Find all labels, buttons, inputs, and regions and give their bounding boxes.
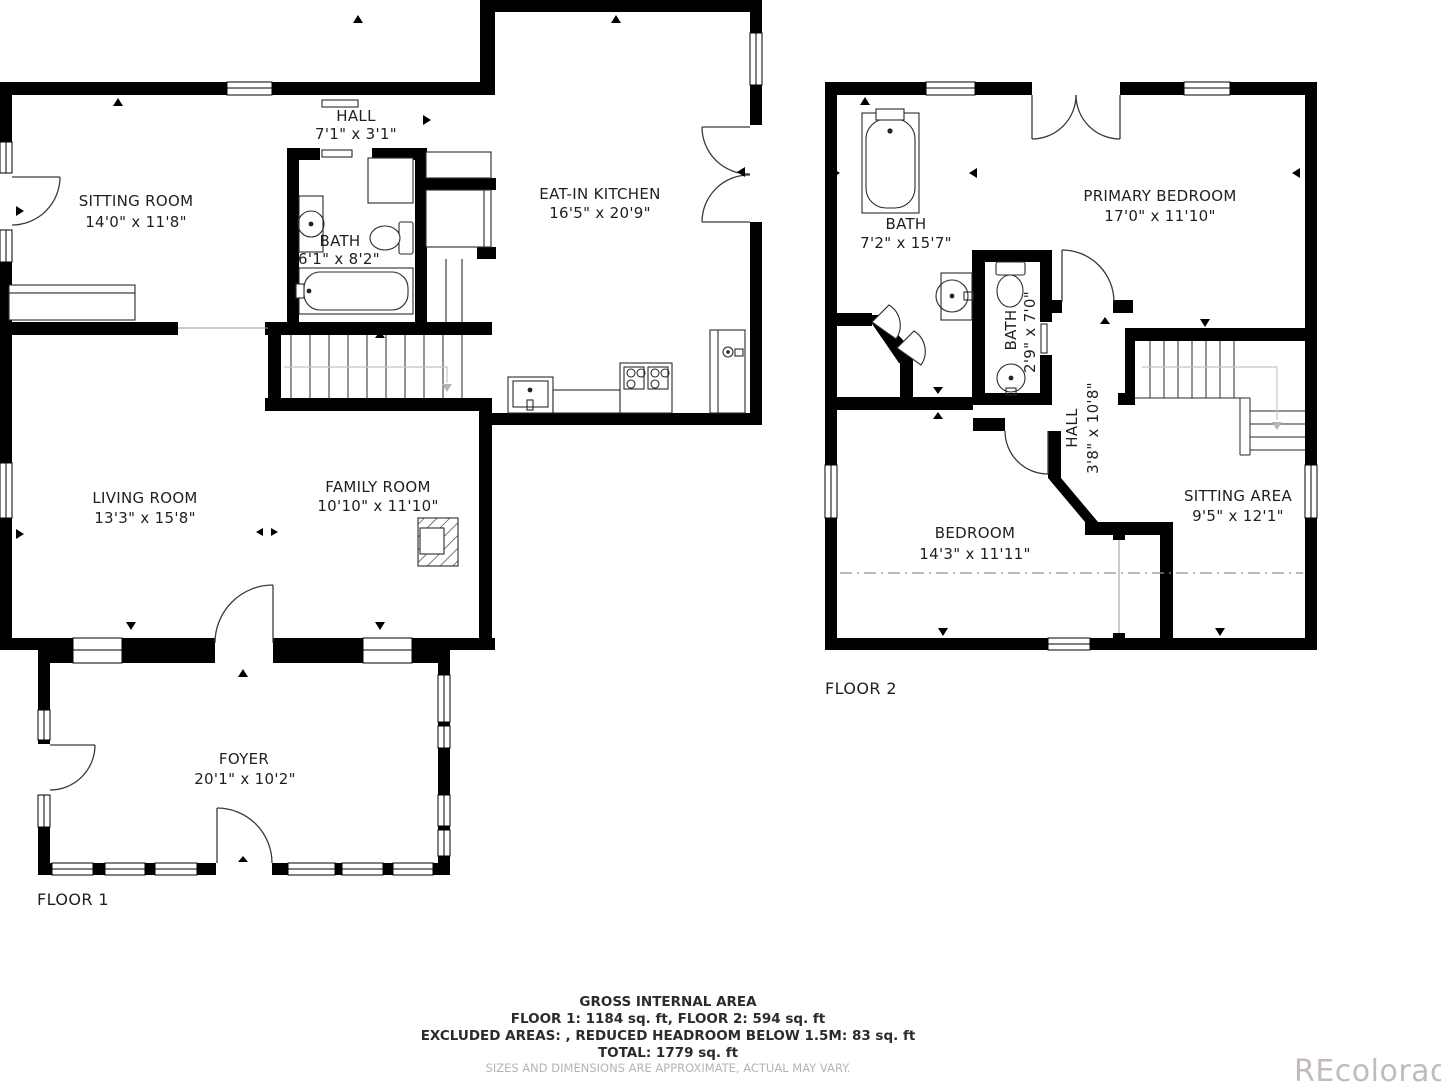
disclaimer: SIZES AND DIMENSIONS ARE APPROXIMATE, AC… [486,1061,851,1075]
floor2-label: FLOOR 2 [825,679,897,698]
total-area: TOTAL: 1779 sq. ft [598,1045,739,1061]
floor1-stairs [284,335,462,398]
sitting-counter [9,285,135,320]
room-dims-hall2: 3'8" x 10'8" [1084,382,1102,474]
shower-icon [368,158,413,203]
door-foyer-front [217,808,272,863]
door-bedroom-hall [1005,431,1048,474]
room-label-bedroom: BEDROOM [935,524,1015,542]
floor1-label: FLOOR 1 [37,890,109,909]
bathtub-icon [296,268,413,314]
room-label-family: FAMILY ROOM [325,478,430,496]
pocket-door-bath2 [1041,324,1047,353]
stove-icon [620,363,672,413]
pocket-door-bath1 [322,150,352,157]
kitchen-island [710,330,745,413]
room-dims-kitchen: 16'5" x 20'9" [549,204,651,222]
pedestal-sink-icon [936,273,973,320]
room-dims-bath-small: 2'9" x 7'0" [1021,291,1039,373]
fireplace-icon [418,518,458,566]
room-label-hall1: HALL [336,107,376,125]
room-label-bath2: BATH [885,215,926,233]
kitchen-closets [426,152,491,322]
floor1-plan: SITTING ROOM 14'0" x 11'8" HALL 7'1" x 3… [0,0,762,909]
bathtub2-icon [862,109,919,213]
room-label-primary: PRIMARY BEDROOM [1083,187,1236,205]
kitchen-counter [553,390,620,413]
room-label-kitchen: EAT-IN KITCHEN [539,185,660,203]
kitchen-sink-icon [508,377,553,413]
room-label-sitting-area: SITTING AREA [1184,487,1293,505]
room-dims-sitting: 14'0" x 11'8" [85,213,187,231]
room-dims-hall1: 7'1" x 3'1" [315,125,397,143]
hall-ledge [322,100,358,107]
room-dims-bath1: 6'1" x 8'2" [298,250,380,268]
room-dims-bedroom: 14'3" x 11'11" [919,545,1030,563]
excluded-areas: EXCLUDED AREAS: , REDUCED HEADROOM BELOW… [421,1028,916,1044]
room-dims-family: 10'10" x 11'10" [317,497,438,515]
room-label-bath1: BATH [319,232,360,250]
gross-area-title: GROSS INTERNAL AREA [579,994,757,1010]
room-dims-primary: 17'0" x 11'10" [1104,207,1215,225]
door-foyer-left [50,745,95,790]
room-label-sitting: SITTING ROOM [79,192,194,210]
room-dims-bath2: 7'2" x 15'7" [860,234,952,252]
watermark: REcolorado [1294,1054,1441,1085]
floorplan-page: SITTING ROOM 14'0" x 11'8" HALL 7'1" x 3… [0,0,1441,1085]
room-dims-sitting-area: 9'5" x 12'1" [1192,507,1284,525]
footer: GROSS INTERNAL AREA FLOOR 1: 1184 sq. ft… [421,994,916,1075]
room-label-living: LIVING ROOM [92,489,197,507]
floor2-plan: BATH 7'2" x 15'7" PRIMARY BEDROOM 17'0" … [825,82,1317,698]
room-label-foyer: FOYER [219,750,269,768]
room-label-bath-small: BATH [1002,309,1020,350]
room-dims-foyer: 20'1" x 10'2" [194,770,296,788]
door-living-foyer [215,585,273,643]
floorplan-image: SITTING ROOM 14'0" x 11'8" HALL 7'1" x 3… [0,0,1441,1085]
floor2-stairs [1135,341,1305,455]
room-dims-living: 13'3" x 15'8" [94,509,196,527]
door-primary-closet [1032,95,1120,139]
room-label-hall2: HALL [1063,408,1081,448]
floor-areas: FLOOR 1: 1184 sq. ft, FLOOR 2: 594 sq. f… [511,1011,826,1027]
door-sitting-entry [12,177,60,225]
door-primary-hall [1062,250,1114,302]
